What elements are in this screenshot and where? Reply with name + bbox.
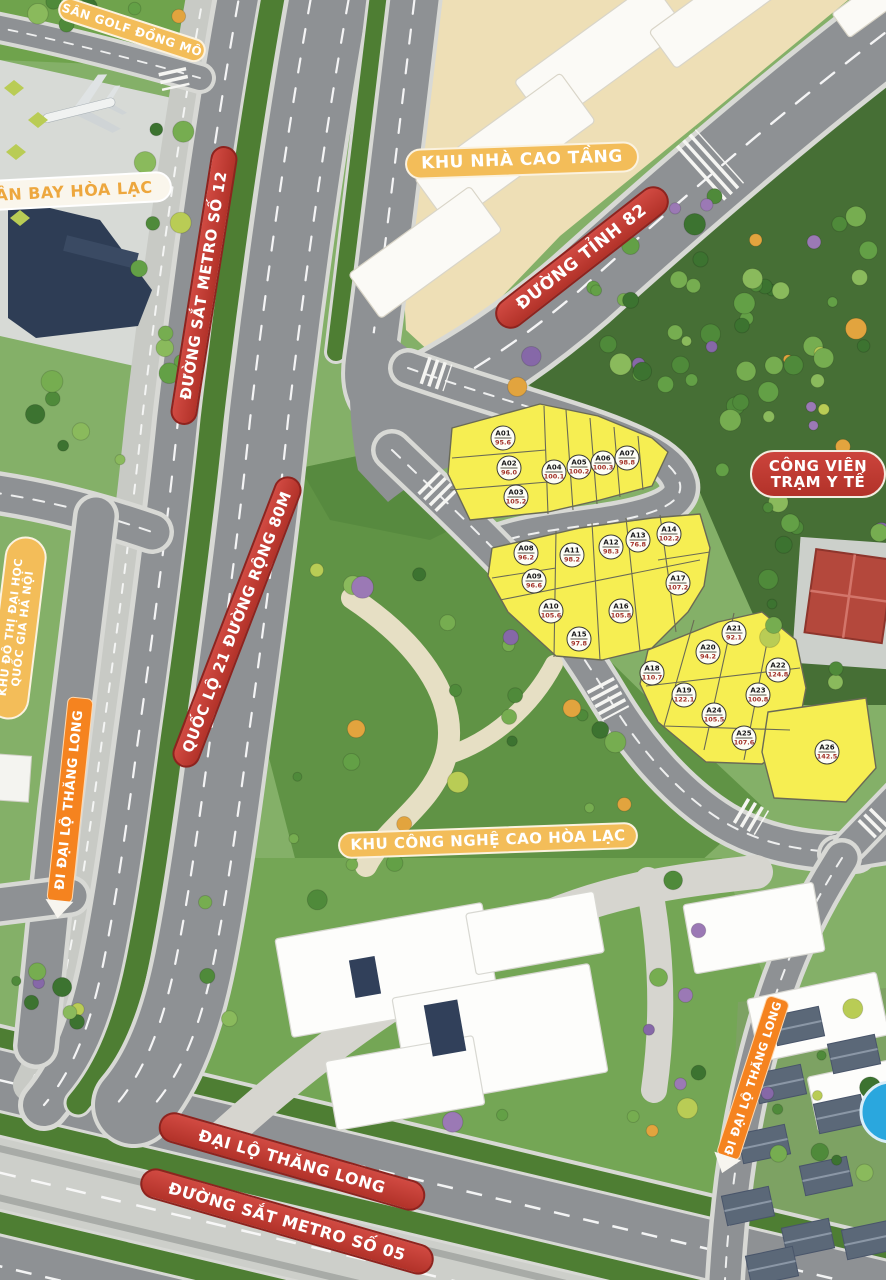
tree-icon <box>809 421 819 431</box>
plot-badge: A1376.8 <box>626 528 651 553</box>
plot-area: 96.0 <box>501 469 517 477</box>
tree-icon <box>811 1143 829 1161</box>
tree-icon <box>585 803 595 813</box>
tree-icon <box>672 356 689 373</box>
plot-code: A24 <box>705 707 722 716</box>
tree-icon <box>158 326 173 341</box>
tree-icon <box>289 834 299 844</box>
label-text: SÂN BAY HÒA LẠC <box>0 178 153 204</box>
plot-area: 96.6 <box>526 582 542 590</box>
tree-icon <box>199 896 212 909</box>
tree-icon <box>627 1111 639 1123</box>
tree-icon <box>763 411 774 422</box>
plot-code: A08 <box>517 545 534 554</box>
tree-icon <box>784 355 803 374</box>
plot-badge: A0296.0 <box>497 456 522 481</box>
tree-icon <box>508 688 523 703</box>
tree-icon <box>310 563 323 576</box>
tree-icon <box>814 348 834 368</box>
tree-icon <box>807 235 821 249</box>
tree-icon <box>200 968 215 983</box>
tree-icon <box>734 293 755 314</box>
plot-area: 98.8 <box>619 459 635 467</box>
plot-area: 98.2 <box>564 556 580 564</box>
plot-code: A25 <box>735 730 752 739</box>
plot-code: A02 <box>500 460 517 469</box>
tree-icon <box>150 123 163 136</box>
tree-icon <box>53 978 72 997</box>
tree-icon <box>347 720 365 738</box>
tree-icon <box>765 617 782 634</box>
tree-icon <box>670 203 681 214</box>
tree-icon <box>843 999 863 1019</box>
tree-icon <box>447 772 468 793</box>
plot-code: A11 <box>563 547 580 556</box>
tree-icon <box>674 1078 686 1090</box>
plot-area: 142.5 <box>817 753 838 761</box>
plot-area: 107.6 <box>734 739 755 747</box>
plot-badge: A1198.2 <box>560 543 585 568</box>
tree-icon <box>502 709 517 724</box>
tree-icon <box>686 279 700 293</box>
plot-code: A26 <box>818 744 835 753</box>
tree-icon <box>610 353 632 375</box>
tree-icon <box>128 2 141 15</box>
plot-code: A13 <box>629 532 646 541</box>
tree-icon <box>646 1125 658 1137</box>
plot-badge: A14102.2 <box>657 522 682 547</box>
plot-badge: A05100.2 <box>567 455 592 480</box>
tree-icon <box>643 1024 654 1035</box>
plot-code: A01 <box>494 430 511 439</box>
tree-icon <box>600 336 617 353</box>
plot-code: A03 <box>507 489 524 498</box>
tree-icon <box>686 374 698 386</box>
tree-icon <box>668 325 683 340</box>
tree-icon <box>856 1164 873 1181</box>
tree-icon <box>811 374 825 388</box>
tree-icon <box>156 339 174 357</box>
plot-code: A15 <box>570 631 587 640</box>
tree-icon <box>346 859 358 871</box>
tree-icon <box>134 152 156 174</box>
plot-area: 110.7 <box>642 674 663 682</box>
plot-badge: A03105.2 <box>504 485 529 510</box>
plot-area: 124.8 <box>768 671 789 679</box>
plot-code: A12 <box>602 539 619 548</box>
tree-icon <box>758 570 778 590</box>
tree-icon <box>413 568 426 581</box>
plot-area: 105.5 <box>704 716 725 724</box>
plot-area: 105.2 <box>506 498 527 506</box>
plot-badge: A10105.6 <box>539 599 564 624</box>
tree-icon <box>772 282 789 299</box>
tree-icon <box>670 271 687 288</box>
plot-badge: A2094.2 <box>696 640 721 665</box>
plot-code: A18 <box>643 665 660 674</box>
tree-icon <box>846 206 866 226</box>
tree-icon <box>817 1051 826 1060</box>
tree-icon <box>693 252 708 267</box>
plot-area: 100.2 <box>569 468 590 476</box>
plot-area: 96.2 <box>518 554 534 562</box>
tree-icon <box>307 890 327 910</box>
tree-icon <box>829 662 843 676</box>
tree-icon <box>682 336 692 346</box>
tree-icon <box>781 514 799 532</box>
plot-area: 76.8 <box>630 541 646 549</box>
plot-code: A20 <box>699 644 716 653</box>
tree-icon <box>633 362 651 380</box>
plot-area: 107.2 <box>668 584 689 592</box>
masterplan-map: A0195.6A0296.0A03105.2A04100.1A05100.2A0… <box>0 0 886 1280</box>
plot-badge: A2192.1 <box>722 621 747 646</box>
tree-icon <box>742 269 762 289</box>
plot-badge: A1597.8 <box>567 627 592 652</box>
plot-area: 100.1 <box>544 473 565 481</box>
plot-code: A06 <box>594 455 611 464</box>
plot-code: A16 <box>612 603 629 612</box>
tree-icon <box>72 423 89 440</box>
tree-icon <box>115 455 125 465</box>
tree-icon <box>497 1109 508 1120</box>
tree-icon <box>691 1065 706 1080</box>
tree-icon <box>508 377 527 396</box>
tree-icon <box>857 340 870 353</box>
tree-icon <box>503 630 518 645</box>
tree-icon <box>735 318 750 333</box>
label-line: CÔNG VIÊN <box>769 458 867 474</box>
tree-icon <box>716 463 729 476</box>
tree-icon <box>767 599 777 609</box>
tree-icon <box>58 440 69 451</box>
plot-badge: A23100.8 <box>746 683 771 708</box>
plot-area: 97.8 <box>571 640 587 648</box>
plot-badge: A1298.3 <box>599 535 624 560</box>
plot-area: 122.1 <box>674 696 695 704</box>
tree-icon <box>765 356 783 374</box>
plot-badge: A0896.2 <box>514 541 539 566</box>
tree-icon <box>832 1155 842 1165</box>
tree-icon <box>623 292 639 308</box>
tree-icon <box>443 1112 463 1132</box>
plot-badge: A18110.7 <box>640 661 665 686</box>
tree-icon <box>770 1145 787 1162</box>
tree-icon <box>818 404 829 415</box>
tree-icon <box>749 234 762 247</box>
plot-badge: A22124.8 <box>766 658 791 683</box>
plot-code: A05 <box>570 459 587 468</box>
plot-area: 95.6 <box>495 439 511 447</box>
tree-icon <box>684 214 706 236</box>
tree-icon <box>170 212 191 233</box>
plot-code: A22 <box>769 662 786 671</box>
tree-icon <box>45 391 60 406</box>
plot-badge: A0798.8 <box>615 446 640 471</box>
tree-icon <box>772 1104 782 1114</box>
tree-icon <box>706 341 717 352</box>
tree-icon <box>657 376 673 392</box>
plot-area: 100.8 <box>748 696 769 704</box>
tree-icon <box>763 503 773 513</box>
tree-icon <box>592 721 609 738</box>
tree-icon <box>63 1006 77 1020</box>
tree-icon <box>812 1091 822 1101</box>
label-line: TRẠM Y TẾ <box>771 474 866 490</box>
cong-vien-tram-y-te-label: CÔNG VIÊNTRẠM Y TẾ <box>750 450 886 498</box>
plot-code: A07 <box>618 450 635 459</box>
tree-icon <box>173 121 194 142</box>
tree-icon <box>758 382 778 402</box>
plot-area: 105.8 <box>611 612 632 620</box>
plot-code: A23 <box>749 687 766 696</box>
tree-icon <box>449 684 461 696</box>
tree-icon <box>563 699 581 717</box>
tree-icon <box>293 772 302 781</box>
tree-icon <box>649 968 667 986</box>
tree-icon <box>677 1098 698 1119</box>
tree-icon <box>172 9 186 23</box>
direction-arrow-icon <box>44 899 74 920</box>
plot-badge: A16105.8 <box>609 599 634 624</box>
plot-badge: A24105.5 <box>702 703 727 728</box>
plot-area: 94.2 <box>700 653 716 661</box>
tree-icon <box>222 1011 238 1027</box>
tree-icon <box>678 988 692 1002</box>
tree-icon <box>775 536 792 553</box>
plot-area: 105.6 <box>541 612 562 620</box>
tree-icon <box>26 405 45 424</box>
tree-icon <box>664 871 683 890</box>
tree-icon <box>832 216 847 231</box>
tree-icon <box>761 1087 774 1100</box>
tree-icon <box>691 923 706 938</box>
tree-icon <box>827 297 837 307</box>
plot-code: A19 <box>675 687 692 696</box>
tree-icon <box>352 576 374 598</box>
plot-badge: A04100.1 <box>542 460 567 485</box>
plot-code: A17 <box>669 575 686 584</box>
plot-badge: A06100.3 <box>591 451 616 476</box>
plot-area: 102.2 <box>659 535 680 543</box>
tree-icon <box>146 217 160 231</box>
tree-icon <box>870 524 886 542</box>
tree-icon <box>806 402 816 412</box>
plot-area: 92.1 <box>726 634 742 642</box>
plot-code: A04 <box>545 464 562 473</box>
tree-icon <box>828 675 843 690</box>
plot-badge: A0996.6 <box>522 569 547 594</box>
tree-icon <box>720 410 741 431</box>
plot-badge: A17107.2 <box>666 571 691 596</box>
tree-icon <box>846 318 867 339</box>
tree-icon <box>701 199 713 211</box>
medical-station-building <box>805 549 886 643</box>
tree-icon <box>617 798 631 812</box>
tree-icon <box>522 347 542 367</box>
tree-icon <box>131 260 148 277</box>
tree-icon <box>507 736 517 746</box>
plot-code: A14 <box>660 526 677 535</box>
tree-icon <box>41 371 63 393</box>
label-text: KHU NHÀ CAO TẦNG <box>421 147 623 172</box>
tree-icon <box>24 995 38 1009</box>
tree-icon <box>343 754 360 771</box>
tree-icon <box>733 394 749 410</box>
plot-badge: A19122.1 <box>672 683 697 708</box>
tree-icon <box>28 4 49 25</box>
tree-icon <box>736 361 756 381</box>
plot-code: A09 <box>525 573 542 582</box>
tree-icon <box>29 963 46 980</box>
label-text: KHU CÔNG NGHỆ CAO HÒA LẠC <box>350 827 626 853</box>
plot-badge: A25107.6 <box>732 726 757 751</box>
tree-icon <box>852 270 868 286</box>
tree-icon <box>591 285 602 296</box>
plot-area: 100.3 <box>593 464 614 472</box>
plot-code: A10 <box>542 603 559 612</box>
tree-icon <box>440 615 456 631</box>
plot-badge: A0195.6 <box>491 426 516 451</box>
plot-badge: A26142.5 <box>815 740 840 765</box>
tree-icon <box>12 976 21 985</box>
plot-area: 98.3 <box>603 548 619 556</box>
tree-icon <box>859 241 877 259</box>
plot-code: A21 <box>725 625 742 634</box>
